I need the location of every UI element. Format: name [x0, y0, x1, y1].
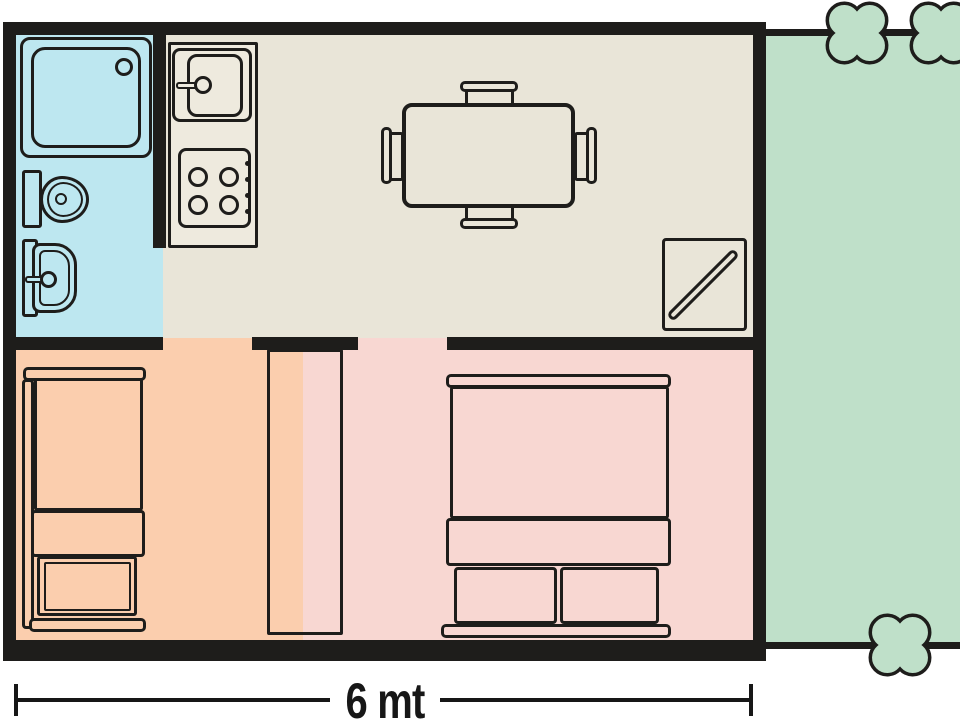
wall-interior-left-segment	[16, 337, 163, 350]
stove-burner-icon	[219, 167, 239, 187]
toilet-tank	[22, 170, 42, 228]
double-bed-pillow-left	[454, 567, 557, 624]
wall-top	[3, 22, 766, 35]
dimension-line-left	[16, 698, 330, 702]
single-bed-mattress	[34, 378, 143, 511]
bush-icon	[862, 607, 938, 683]
floor-plan-canvas: 6 mt	[0, 0, 960, 720]
single-bed-lower-bunk-inner	[44, 562, 131, 611]
kitchen-faucet-knob	[194, 76, 212, 94]
single-bed-footboard	[29, 618, 146, 632]
double-bed-blanket-band	[446, 518, 671, 566]
wall-bottom	[3, 640, 766, 661]
shower-drain-icon	[115, 58, 133, 76]
stove	[178, 148, 251, 228]
toilet-flush-icon	[55, 193, 67, 205]
stove-knob-icon	[245, 177, 250, 182]
wall-interior-right-segment	[447, 337, 753, 350]
single-bed-rail	[22, 379, 34, 629]
stove-burner-icon	[188, 195, 208, 215]
garden-area	[760, 33, 960, 649]
wall-bathroom-kitchen	[153, 35, 166, 248]
double-bed-pillow-right	[560, 567, 659, 624]
stove-burner-icon	[219, 195, 239, 215]
wall-left	[3, 22, 16, 661]
dimension-line-right	[440, 698, 751, 702]
single-bed-blanket-band	[31, 510, 145, 557]
chair-right-back	[586, 127, 597, 184]
wardrobe-divider	[267, 349, 343, 635]
double-bed-mattress	[450, 386, 669, 519]
stove-knob-icon	[245, 161, 250, 166]
bush-icon	[903, 0, 960, 71]
double-bed-footboard	[441, 624, 671, 638]
wall-right	[753, 22, 766, 661]
stove-knob-icon	[245, 193, 250, 198]
bush-icon	[819, 0, 895, 71]
stove-burner-icon	[188, 167, 208, 187]
dimension-label: 6 mt	[345, 676, 424, 720]
chair-left-back	[381, 127, 392, 184]
chair-bottom-back	[460, 218, 518, 229]
washbasin-faucet-knob	[40, 271, 57, 288]
stove-knob-icon	[245, 209, 250, 214]
chair-top-back	[460, 81, 518, 92]
dining-table	[402, 103, 575, 208]
